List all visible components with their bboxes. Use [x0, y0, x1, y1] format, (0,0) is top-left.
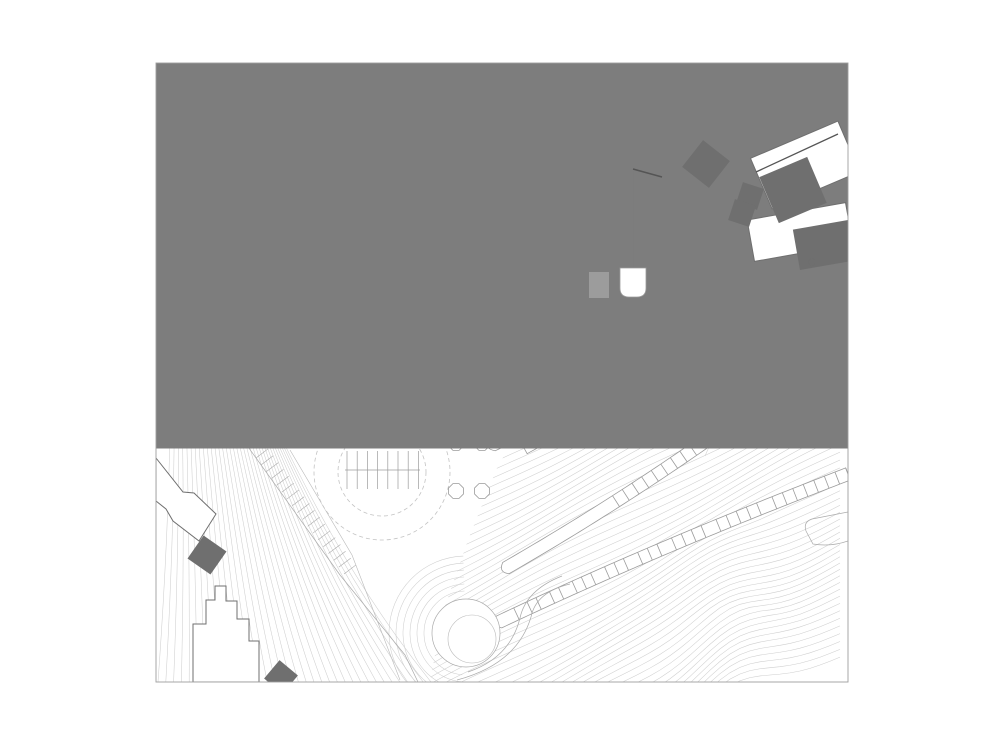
main-building-tab-left	[301, 244, 313, 257]
building-sw	[193, 586, 259, 682]
site-plan-drawing	[0, 0, 1000, 750]
main-building-service	[594, 277, 604, 293]
shed-west	[197, 545, 216, 564]
main-building-entry	[620, 268, 646, 297]
main-building-roof-b	[507, 231, 606, 254]
shed-ne-small-b	[735, 206, 749, 220]
pond-outer	[432, 599, 500, 667]
building-ne-notch	[776, 174, 809, 206]
shed-ne	[694, 152, 718, 176]
site-plan-page	[0, 0, 1000, 750]
trail-hook	[805, 512, 848, 545]
building-ne-annex	[809, 236, 839, 254]
shed-sw	[273, 669, 290, 686]
shed-ne-small-a	[743, 189, 757, 203]
